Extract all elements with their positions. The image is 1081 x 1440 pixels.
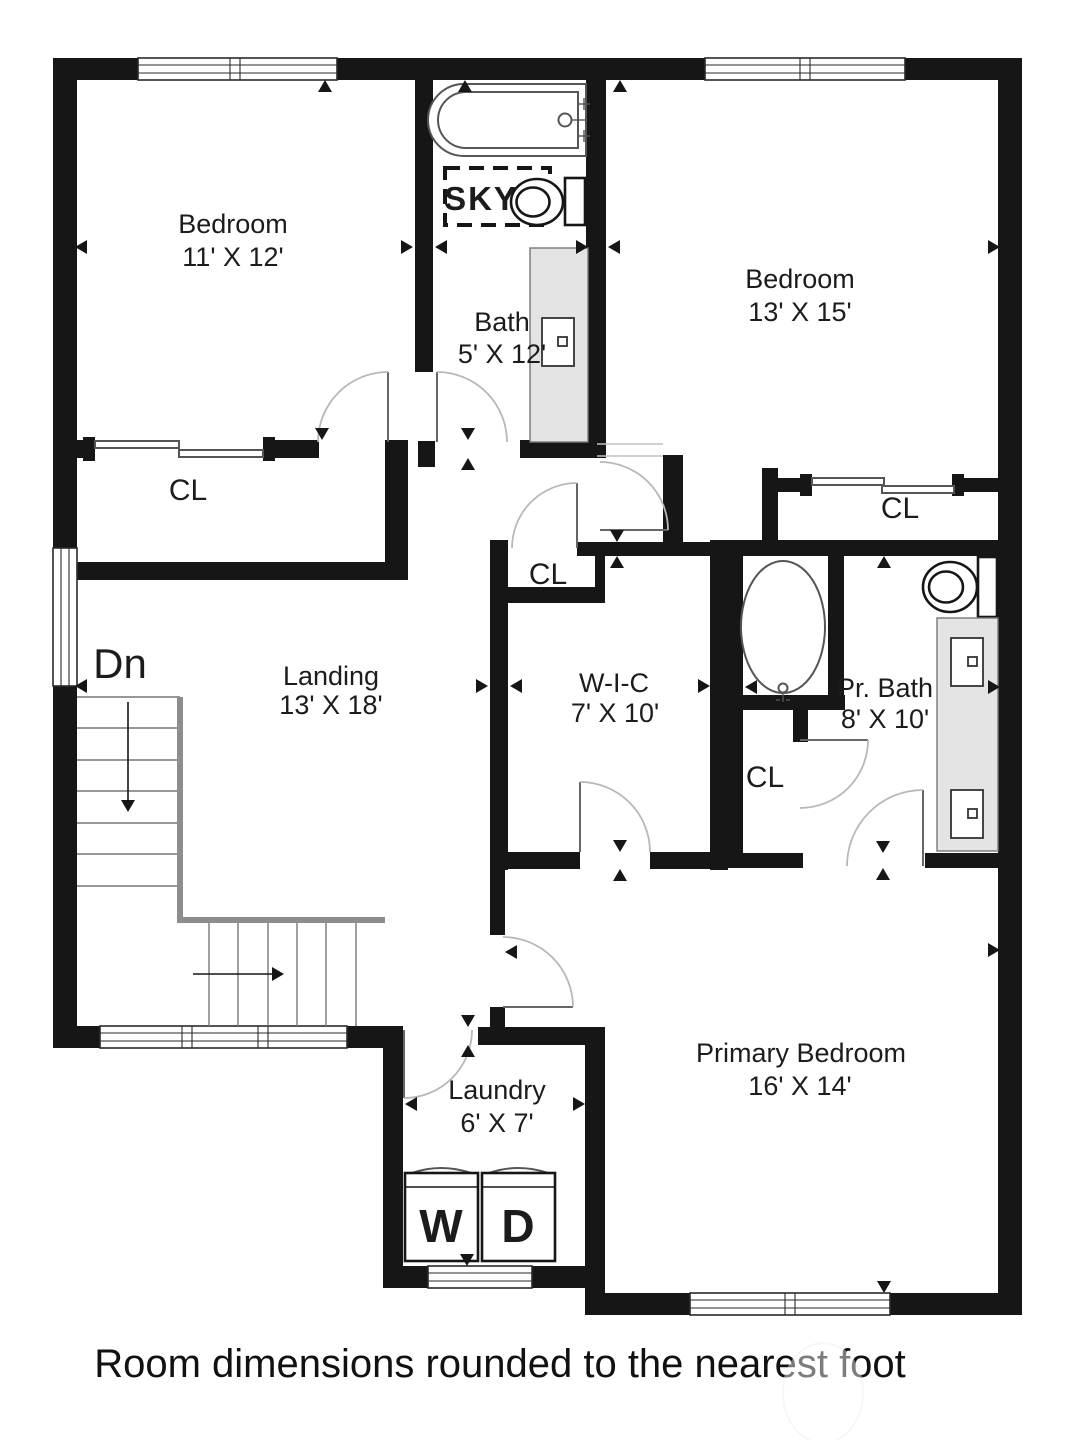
window-icon — [705, 58, 905, 80]
door-closet-pr-bath — [800, 740, 868, 808]
floor-plan-page: Bedroom 11' X 12' SKY Bath 5' X 12' Bedr… — [0, 0, 1081, 1440]
room-label-primary-bedroom: Primary Bedroom — [696, 1038, 906, 1068]
room-label-laundry: Laundry — [448, 1075, 546, 1105]
toilet-icon — [923, 557, 997, 617]
bathtub-icon — [428, 84, 590, 156]
door-bedroom-1 — [318, 372, 388, 442]
room-label-wic: W-I-C — [579, 668, 649, 698]
window-icon — [138, 58, 337, 80]
dryer-label: D — [501, 1200, 534, 1252]
floor-plan-image: Bedroom 11' X 12' SKY Bath 5' X 12' Bedr… — [0, 0, 1081, 1440]
room-dims-laundry: 6' X 7' — [460, 1108, 533, 1138]
closet-label: CL — [169, 474, 207, 507]
room-label-pr-bath: Pr. Bath — [837, 673, 933, 703]
room-dims-primary-bedroom: 16' X 14' — [748, 1071, 851, 1101]
room-label-landing: Landing — [283, 661, 379, 691]
watermark — [783, 1343, 863, 1440]
window-icon — [100, 1026, 347, 1048]
oval-tub-icon — [741, 561, 825, 702]
room-dims-wic: 7' X 10' — [571, 698, 659, 728]
double-vanity-icon — [937, 618, 998, 851]
window-icon — [690, 1293, 890, 1315]
door-pr-bath — [847, 790, 923, 866]
window-icon — [53, 548, 77, 686]
room-label-bedroom-2: Bedroom — [745, 264, 855, 294]
stairs-down-label: Dn — [93, 640, 147, 687]
closet-label: CL — [529, 558, 567, 591]
window-icon — [428, 1266, 532, 1288]
toilet-icon — [511, 178, 585, 225]
room-dims-pr-bath: 8' X 10' — [841, 704, 929, 734]
room-label-bath: Bath — [474, 307, 530, 337]
washer-label: W — [419, 1200, 463, 1252]
room-dims-bath: 5' X 12' — [458, 339, 546, 369]
room-label-bedroom-1: Bedroom — [178, 209, 288, 239]
door-closet-hall — [512, 483, 577, 548]
closet-label: CL — [746, 761, 784, 794]
closet-label: CL — [881, 492, 919, 525]
skylight-label: SKY — [444, 180, 518, 217]
staircase — [77, 697, 385, 1026]
door-bedroom-2 — [600, 462, 668, 530]
room-dims-bedroom-2: 13' X 15' — [748, 297, 851, 327]
room-dims-landing: 13' X 18' — [279, 690, 382, 720]
room-dims-bedroom-1: 11' X 12' — [182, 242, 283, 272]
